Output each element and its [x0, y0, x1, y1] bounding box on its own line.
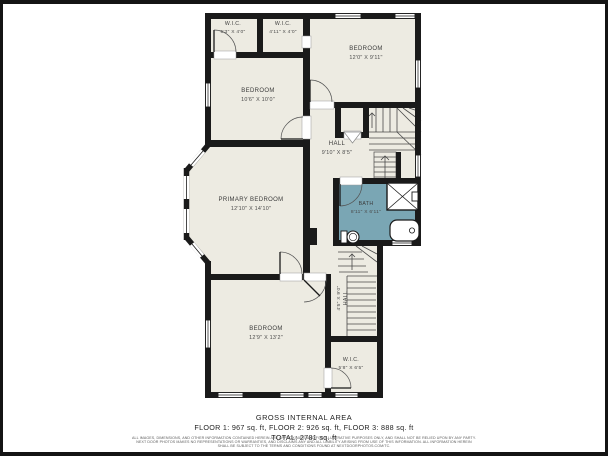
room-label-bedroom-bottom: BEDROOM [249, 326, 282, 332]
room-fills [187, 16, 418, 396]
room-label-bedroom-top-right: BEDROOM [349, 46, 382, 52]
wall-outer-top [205, 13, 421, 19]
wic2-opening [302, 36, 311, 48]
gross-internal-area-title: GROSS INTERNAL AREA [0, 413, 608, 422]
room-dims-bedroom-top-right: 12'0" X 9'11" [349, 55, 382, 61]
floor-plan: W.I.C. 5'3" X 4'0" W.I.C. 4'11" X 4'0" B… [0, 0, 608, 456]
room-label-wic2: W.I.C. [275, 21, 291, 27]
wall-bedroom-ml-bottom [205, 140, 310, 147]
wall-outer-right-upper [415, 13, 421, 246]
room-label-wic3: W.I.C. [343, 357, 359, 363]
wall-bath-left [333, 178, 339, 246]
room-label-primary-bedroom: PRIMARY BEDROOM [218, 197, 283, 203]
wall-stair-enclosure-right [363, 108, 369, 138]
shower-valve-icon [412, 192, 418, 201]
toilet [341, 231, 359, 243]
room-label-bedroom-mid-left: BEDROOM [241, 88, 274, 94]
wall-outer-left-upper [205, 13, 211, 147]
room-dims-bedroom-mid-left: 10'6" X 10'0" [241, 97, 275, 103]
disclaimer: ALL IMAGES, DIMENSIONS, AND OTHER INFORM… [0, 436, 608, 448]
room-dims-bedroom-bottom: 12'9" X 13'2" [249, 335, 283, 341]
room-dims-hall: 9'10" X 8'5" [322, 150, 352, 156]
room-dims-wic2: 4'11" X 4'0" [269, 29, 297, 35]
room-label-hall: HALL [329, 141, 346, 147]
wall-outer-right-lower [377, 240, 383, 398]
disclaimer-line-3: SHALL BE SUBJECT TO THE TERMS AND CONDIT… [0, 444, 608, 448]
room-dims-bath: 8'11" X 6'11" [351, 209, 381, 215]
chimney [303, 228, 317, 245]
room-label-wic1: W.I.C. [225, 21, 241, 27]
bathtub [390, 220, 419, 241]
room-dims-hall-lower: 4'5" X 9'0" [336, 286, 342, 311]
wall-flight-right [396, 152, 401, 182]
wall-wic3-top [325, 336, 383, 342]
room-dims-wic1: 5'3" X 4'0" [221, 29, 246, 35]
shower [387, 183, 418, 210]
room-dims-wic3: 5'8" X 6'5" [339, 365, 364, 371]
room-label-hall-lower: HALL [343, 291, 349, 305]
room-label-bath: BATH [359, 201, 374, 207]
wall-wic-divider [257, 13, 263, 58]
room-dims-primary-bedroom: 12'10" X 14'10" [231, 206, 271, 212]
floor-areas-line: FLOOR 1: 967 sq. ft, FLOOR 2: 926 sq. ft… [0, 423, 608, 432]
floor-plan-page: W.I.C. 5'3" X 4'0" W.I.C. 4'11" X 4'0" B… [0, 0, 608, 456]
